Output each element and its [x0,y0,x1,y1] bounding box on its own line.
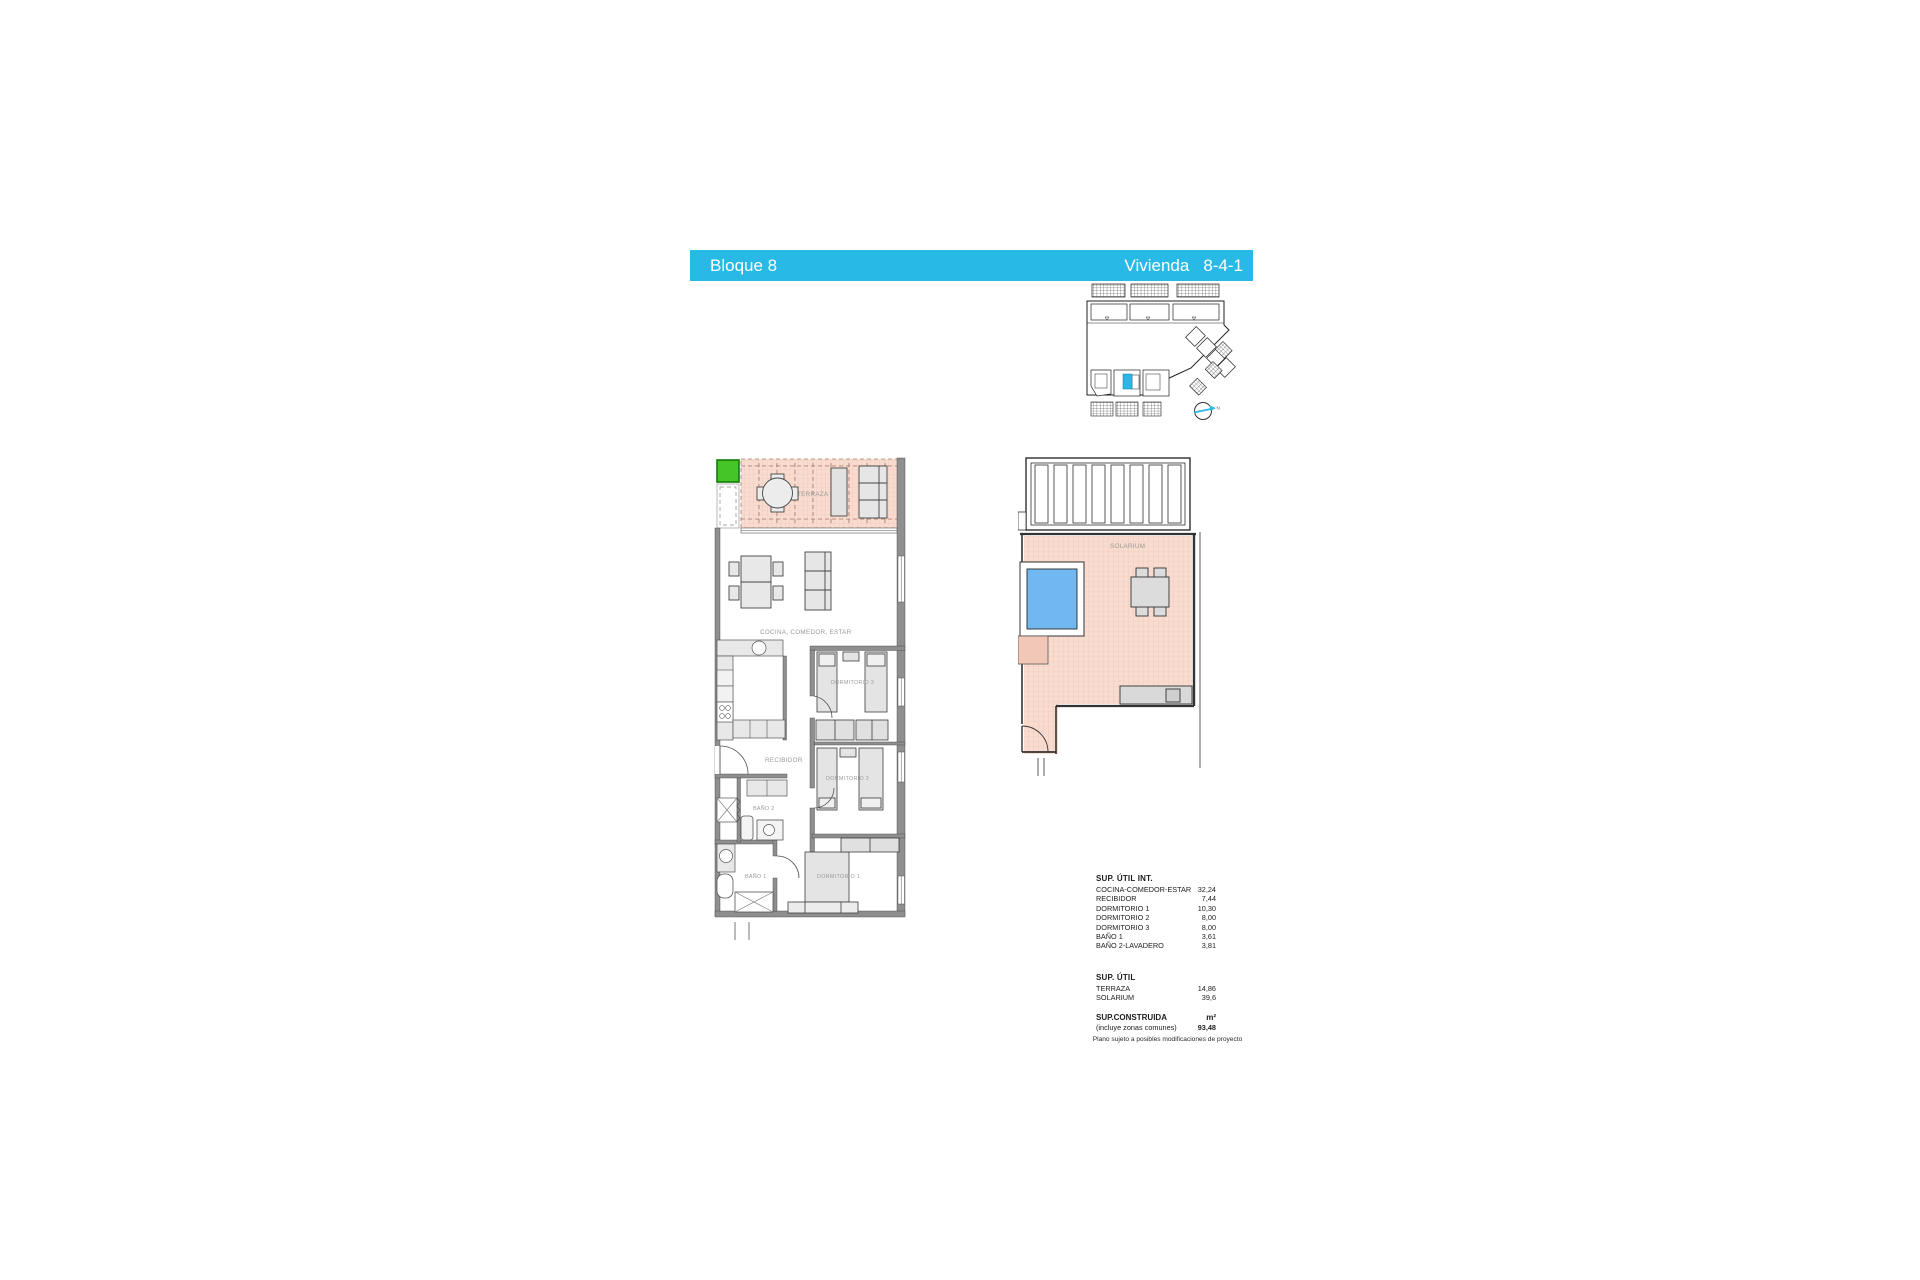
disclaimer-note: Plano sujeto a posibles modificaciones d… [1085,1036,1250,1043]
table-row: DORMITORIO 28,00 [1096,913,1216,922]
table-row: RECIBIDOR7,44 [1096,894,1216,903]
hall-label: RECIBIDOR [765,757,803,764]
planter [1018,636,1048,664]
bedroom-2: DORMITORIO 2 [814,748,883,810]
unit-number: 8-4-1 [1203,256,1243,276]
living-sofa [805,552,831,610]
bedroom-2-label: DORMITORIO 2 [826,776,869,782]
basin [720,850,733,863]
block-title: Bloque 8 [690,256,777,276]
parking-blocks-bottom [1091,402,1161,416]
util-title: SUP. ÚTIL [1096,973,1216,982]
dining-table [729,556,783,608]
terrace-label: TERRAZA [797,491,829,498]
entrance-door [715,746,748,774]
unit-title: Vivienda 8-4-1 [1124,256,1253,276]
table-row: BAÑO 13,61 [1096,932,1216,941]
built-area-value-row: (incluye zonas comunes) 93,48 [1096,1023,1216,1032]
solarium-plan: SOLARIUM [1018,456,1238,781]
solarium-bench [1120,686,1192,704]
apartment-floor-plan: TERRAZA [713,456,919,948]
table-row: TERRAZA14,86 [1096,984,1216,993]
built-area-title-row: SUP.CONSTRUIDA m² [1096,1012,1216,1023]
bathroom-2: BAÑO 2 [741,805,783,840]
table-row: BAÑO 2-LAVADERO3,81 [1096,941,1216,950]
util-int-title: SUP. ÚTIL INT. [1096,874,1216,883]
parking-blocks-top [1092,284,1219,297]
unit-label: Vivienda [1124,256,1189,276]
bathroom-1-label: BAÑO 1 [745,873,767,880]
solarium-label: SOLARIUM [1110,543,1145,550]
north-compass-icon: N [1194,403,1220,420]
living-window-top [741,528,897,533]
bedroom-1: DORMITORIO 1 [788,838,899,913]
bathtub [717,874,733,898]
title-bar: Bloque 8 Vivienda 8-4-1 [690,250,1253,281]
terrace: TERRAZA [741,459,899,528]
bathroom-1: BAÑO 1 [717,844,799,912]
bedroom-3-label: DORMITORIO 3 [831,680,874,686]
site-key-plan: N [1083,282,1258,430]
table-row: DORMITORIO 38,00 [1096,923,1216,932]
bedroom-3: DORMITORIO 3 [814,652,887,718]
table-row: DORMITORIO 110,30 [1096,904,1216,913]
wardrobes [816,720,888,740]
table-row: SOLARIUM39,6 [1096,993,1216,1002]
laundry-shaft [717,780,787,822]
wardrobe-bedroom-1 [841,838,899,852]
highlighted-unit [1123,374,1132,389]
plan-sheet: Bloque 8 Vivienda 8-4-1 [0,0,1920,1280]
living-room-label: COCINA, COMEDOR, ESTAR [760,629,852,636]
compass-north-label: N [1217,406,1220,411]
kitchen-stove [717,702,733,722]
terrace-sofa [859,466,887,518]
jacuzzi [1020,562,1084,636]
building-units-top [1091,304,1219,320]
kitchen [717,640,785,740]
bedroom-1-label: DORMITORIO 1 [817,874,860,880]
toilet [757,820,783,840]
table-row: COCINA-COMEDOR-ESTAR32,24 [1096,885,1216,894]
terrace-side-bay [717,484,739,528]
lower-wall-stub [735,922,749,940]
terrace-lounger [831,468,847,516]
bathroom-2-label: BAÑO 2 [753,805,775,812]
washbasin [741,816,753,840]
areas-table: SUP. ÚTIL INT. COCINA-COMEDOR-ESTAR32,24… [1096,874,1216,1032]
pergola [1018,458,1190,530]
kitchen-sink [752,641,766,655]
shower [735,892,773,912]
stair-access-marker [717,460,739,482]
